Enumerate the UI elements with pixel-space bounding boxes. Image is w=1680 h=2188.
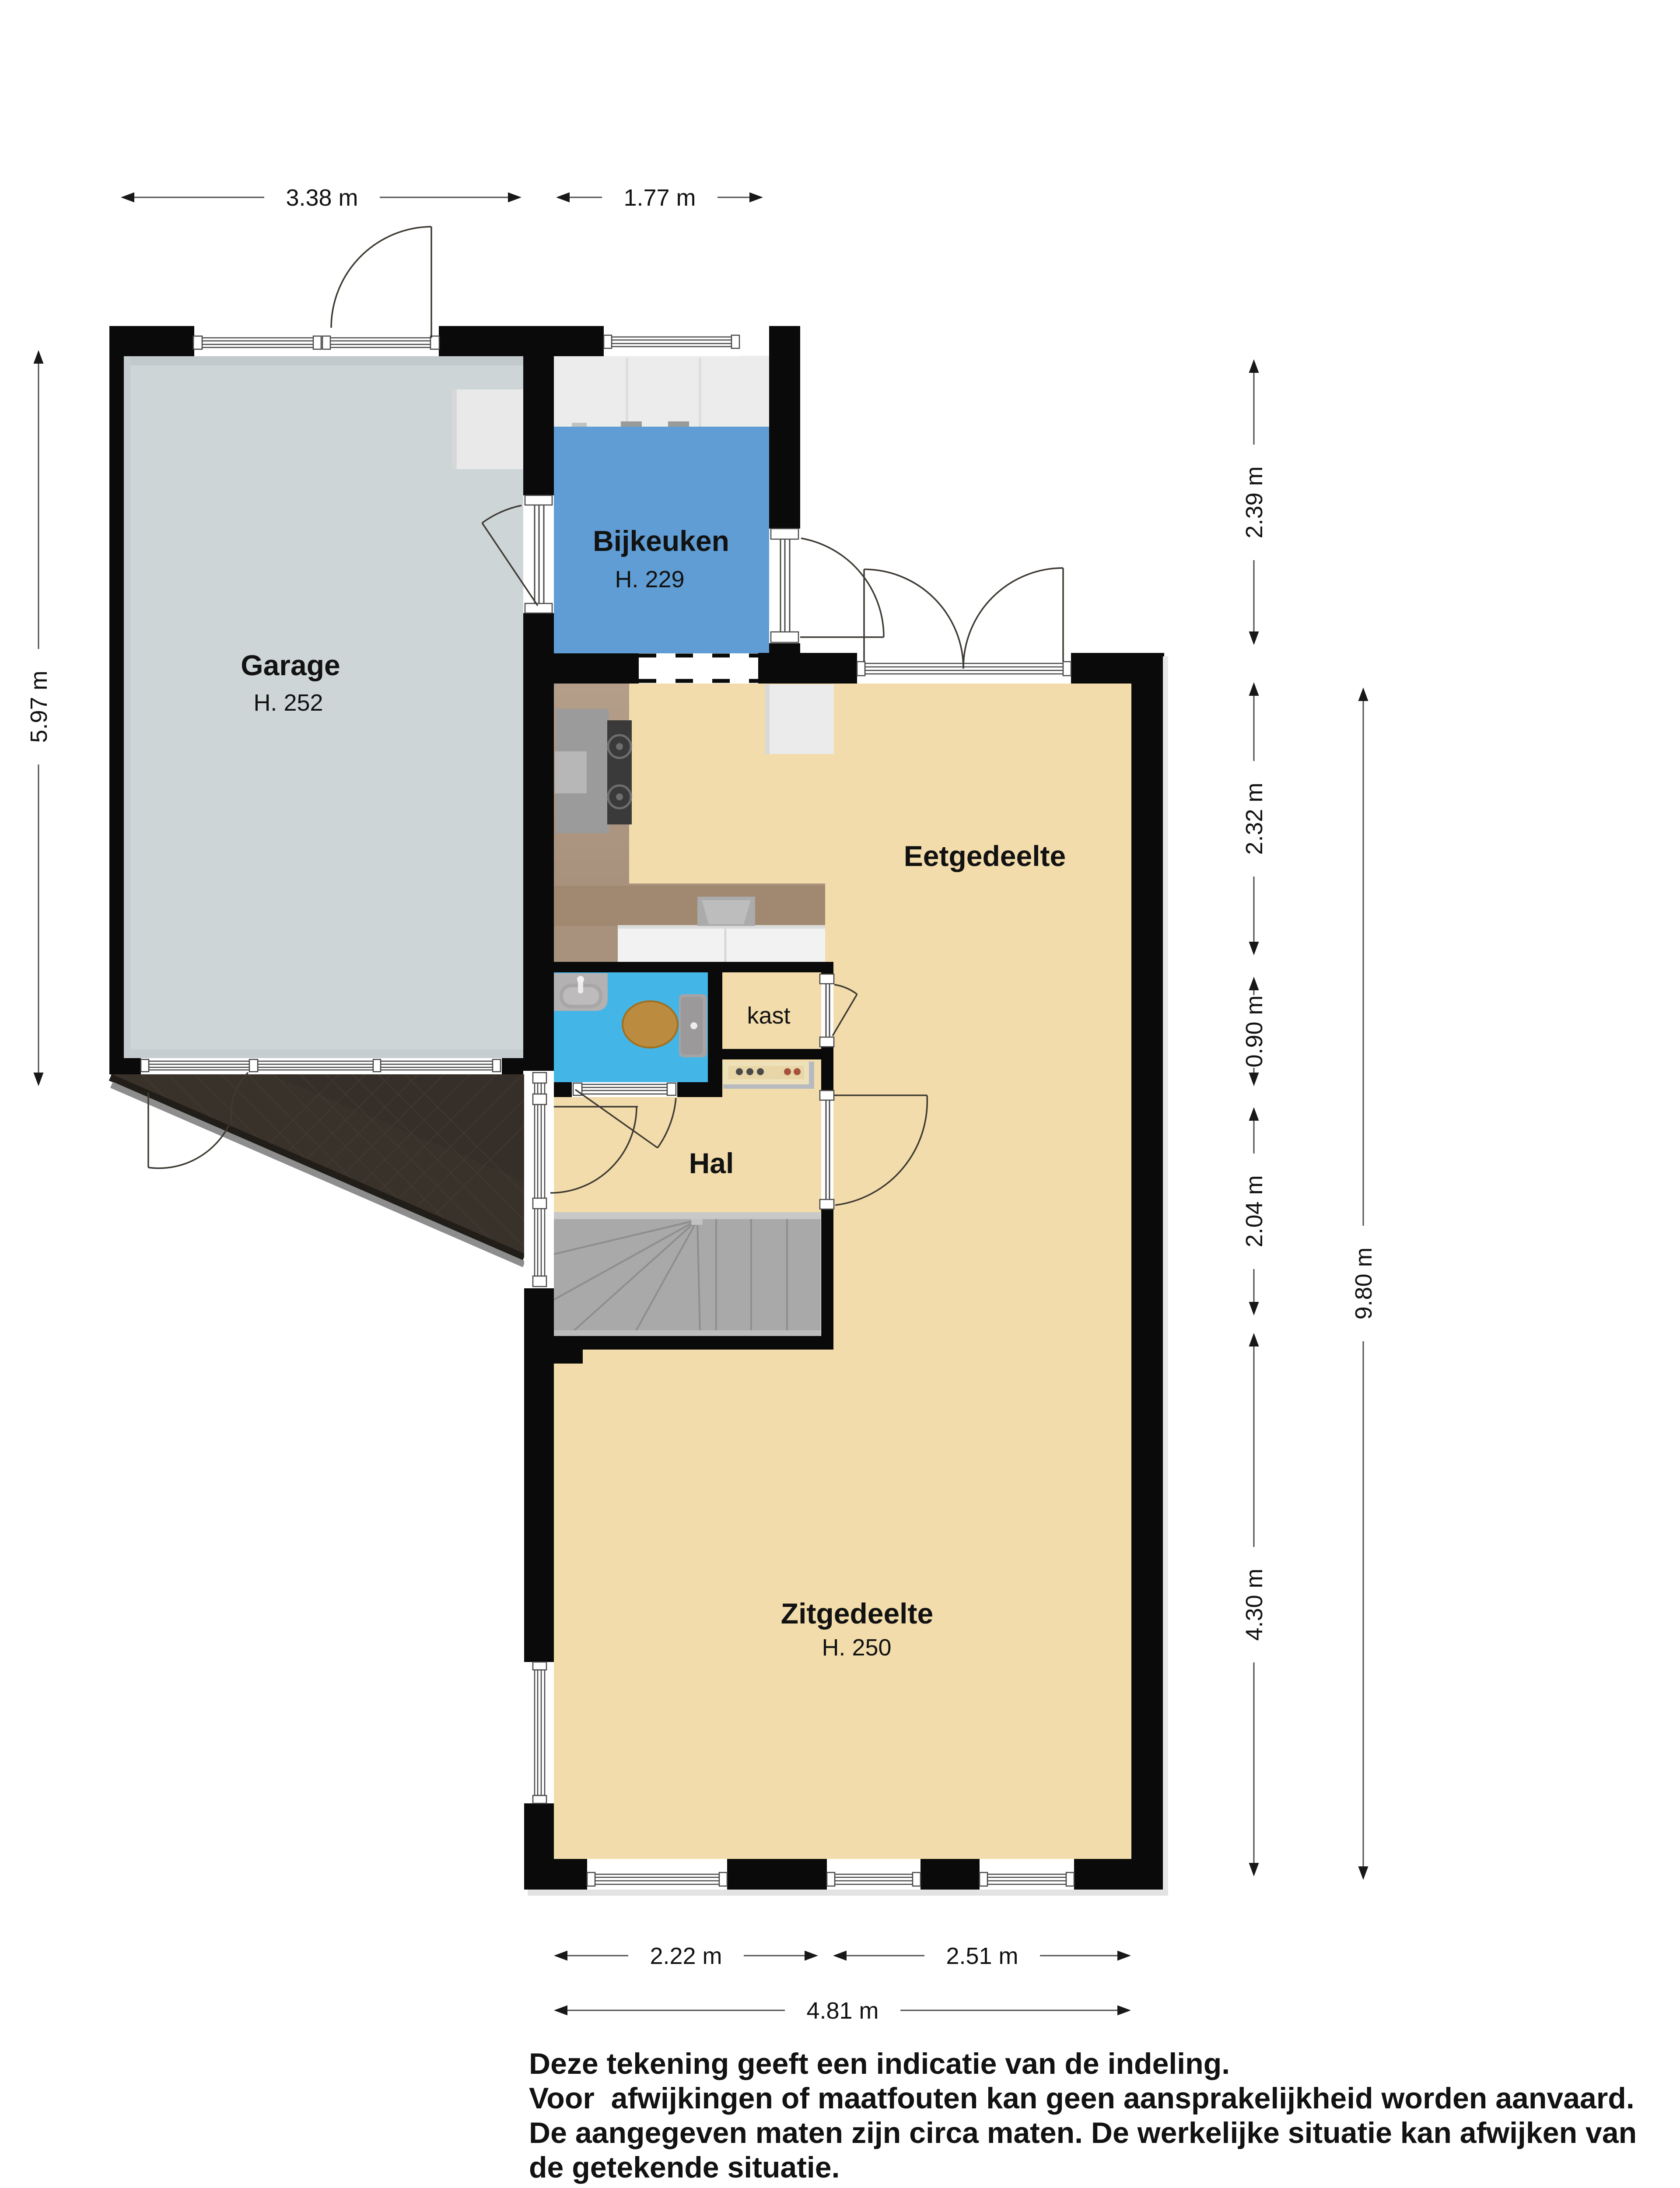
svg-text:9.80 m: 9.80 m <box>1351 1247 1377 1319</box>
svg-text:Deze tekening geeft een indica: Deze tekening geeft een indicatie van de… <box>529 2047 1230 2080</box>
svg-text:Garage: Garage <box>241 649 340 681</box>
svg-text:Voor afwijkingen of maatfoute: Voor afwijkingen of maatfouten kan geen … <box>529 2082 1634 2115</box>
svg-text:H. 250: H. 250 <box>822 1634 891 1661</box>
svg-text:5.97 m: 5.97 m <box>26 670 52 743</box>
svg-text:4.30 m: 4.30 m <box>1241 1568 1267 1641</box>
svg-text:Zitgedeelte: Zitgedeelte <box>781 1597 933 1630</box>
svg-text:2.22 m: 2.22 m <box>650 1943 722 1969</box>
svg-text:2.32 m: 2.32 m <box>1241 782 1267 855</box>
svg-text:H. 252: H. 252 <box>253 690 323 716</box>
svg-text:2.39 m: 2.39 m <box>1241 466 1267 538</box>
svg-text:Hal: Hal <box>689 1147 734 1179</box>
svg-text:3.38 m: 3.38 m <box>286 185 358 211</box>
svg-text:de getekende situatie.: de getekende situatie. <box>529 2151 840 2184</box>
svg-text:4.81 m: 4.81 m <box>806 1998 878 2024</box>
svg-text:2.51 m: 2.51 m <box>946 1943 1018 1969</box>
svg-text:2.04 m: 2.04 m <box>1241 1175 1267 1247</box>
svg-text:Eetgedeelte: Eetgedeelte <box>904 840 1066 872</box>
svg-text:0.90 m: 0.90 m <box>1241 995 1267 1067</box>
svg-text:De aangegeven maten zijn circa: De aangegeven maten zijn circa maten. De… <box>529 2116 1637 2149</box>
svg-text:H. 229: H. 229 <box>615 566 684 593</box>
svg-text:1.77 m: 1.77 m <box>623 185 696 211</box>
svg-text:Bijkeuken: Bijkeuken <box>593 525 729 557</box>
svg-text:kast: kast <box>747 1003 790 1029</box>
